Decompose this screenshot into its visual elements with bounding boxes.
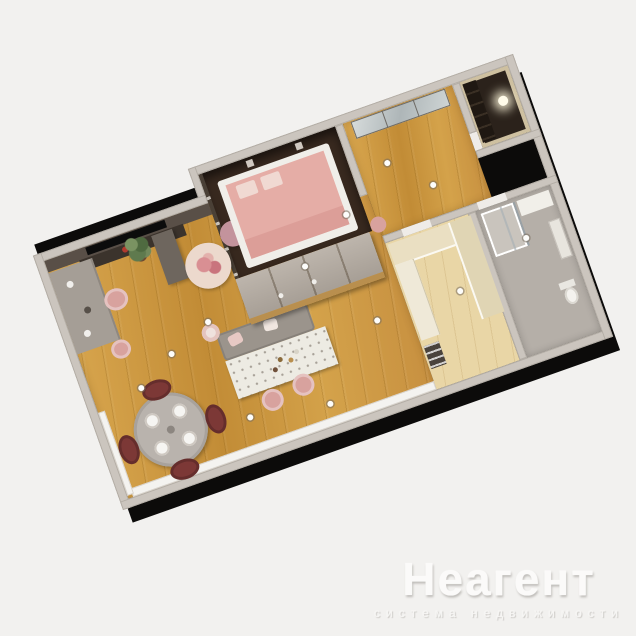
watermark-title: Неагент xyxy=(374,556,624,602)
watermark-subtitle: система недвижимости xyxy=(374,606,624,620)
apartment-plan xyxy=(23,54,613,510)
floorplan-render: Неагент система недвижимости xyxy=(0,0,636,636)
watermark: Неагент система недвижимости xyxy=(374,556,624,620)
